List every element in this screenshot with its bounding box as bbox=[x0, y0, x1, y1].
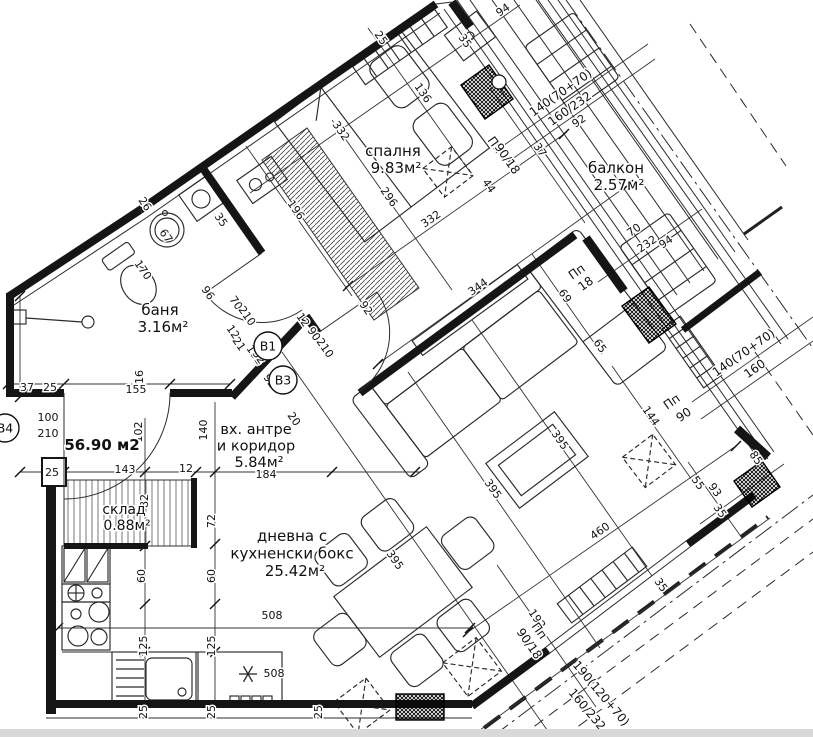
room-name-label: вх. антре bbox=[220, 422, 291, 438]
scan-edge-strip bbox=[0, 729, 813, 737]
room-area-label: 25.42м² bbox=[265, 562, 325, 580]
dimension-label: 25 bbox=[137, 705, 150, 719]
dimension-label: 12 bbox=[179, 462, 193, 475]
dimension-label: 395 bbox=[549, 428, 572, 453]
door-ref-label: В1 bbox=[260, 339, 277, 354]
dimension-label: 60 bbox=[205, 569, 218, 583]
door-swings bbox=[64, 253, 390, 499]
dimension-tick bbox=[559, 129, 569, 139]
kitchen-units bbox=[62, 546, 282, 704]
dimension-label: 37 bbox=[531, 141, 550, 160]
dimension-label: 25 bbox=[43, 381, 57, 394]
dimension-label: 140 bbox=[197, 420, 210, 441]
dimension-label: 93 bbox=[706, 481, 725, 500]
dimension-label: 508 bbox=[264, 667, 285, 680]
dimension-label: 460 bbox=[588, 520, 613, 543]
room-area-label: 0.88м² bbox=[103, 518, 150, 534]
room-area-label: 5.84м² bbox=[234, 455, 283, 471]
dimension-label: 94 bbox=[494, 1, 513, 20]
dimension-label: 16 bbox=[133, 370, 146, 384]
dimension-label: 55 bbox=[689, 474, 708, 493]
floor-drain bbox=[82, 316, 94, 328]
dimension-label: 69 bbox=[556, 287, 575, 306]
dimension-label: 210 bbox=[38, 427, 59, 440]
dimension-ticks bbox=[3, 129, 741, 657]
room-name-label: склад bbox=[102, 502, 145, 518]
room-name-label: и коридор bbox=[217, 439, 295, 455]
dimension-label: 72 bbox=[205, 514, 218, 528]
room-name-label: баня bbox=[141, 301, 178, 319]
dimension-label: 25 bbox=[45, 466, 59, 479]
dimension-label: 136 bbox=[412, 81, 435, 106]
dimension-label: 90 bbox=[673, 405, 694, 425]
dimension-label: 60 bbox=[135, 569, 148, 583]
dimension-label: 65 bbox=[591, 337, 610, 356]
dimension-tick bbox=[731, 441, 741, 451]
shaft-symbol-bedroom bbox=[423, 147, 473, 197]
door-ref-label: В4 bbox=[0, 421, 13, 436]
dimension-label: 155 bbox=[126, 383, 147, 396]
dimension-label: 90/18 bbox=[492, 141, 523, 177]
door-ref-label: В3 bbox=[275, 373, 292, 388]
room-area-label: 9.83м² bbox=[371, 159, 422, 177]
dimension-label: 67 bbox=[157, 227, 176, 246]
hob-star-symbol bbox=[239, 666, 257, 682]
room-area-label: 3.16м² bbox=[138, 318, 189, 336]
dimension-label: 35 bbox=[212, 211, 231, 230]
dimension-label: 125 bbox=[137, 636, 150, 657]
dimension-label: 94 bbox=[657, 233, 676, 252]
dimension-label: 125 bbox=[205, 636, 218, 657]
shaft-symbol-living bbox=[622, 434, 675, 487]
room-name-label: балкон bbox=[588, 159, 644, 177]
dimension-label: 37 bbox=[20, 381, 34, 394]
floor-plan-page: 332296332441962635253513694Пп90/1837140(… bbox=[0, 0, 813, 737]
dining-set bbox=[273, 464, 535, 720]
dimension-label: 332 bbox=[330, 119, 353, 144]
floor-plan-canvas: 332296332441962635253513694Пп90/1837140(… bbox=[0, 0, 813, 737]
dimension-label: 170 bbox=[132, 258, 155, 283]
room-name-label: спалня bbox=[365, 142, 421, 160]
room-name-label: кухненски бокс bbox=[230, 545, 353, 563]
dimension-label: 25 bbox=[312, 705, 325, 719]
room-area-label: 2.57м² bbox=[594, 176, 645, 194]
dimension-label: 508 bbox=[262, 609, 283, 622]
dimension-label: 395 bbox=[482, 477, 505, 502]
dimension-label: 25 bbox=[205, 705, 218, 719]
radiator-living-bottom bbox=[557, 547, 647, 623]
total-area-label: 56.90 м2 bbox=[64, 436, 139, 454]
dimension-label: 100 bbox=[38, 411, 59, 424]
room-name-label: дневна с bbox=[257, 527, 327, 545]
dimension-label: 143 bbox=[115, 463, 136, 476]
dimension-tick bbox=[463, 627, 473, 637]
dimension-label: 144 bbox=[640, 404, 663, 429]
site-boundary-lines bbox=[46, 0, 813, 737]
dimension-label: 44 bbox=[480, 177, 499, 196]
